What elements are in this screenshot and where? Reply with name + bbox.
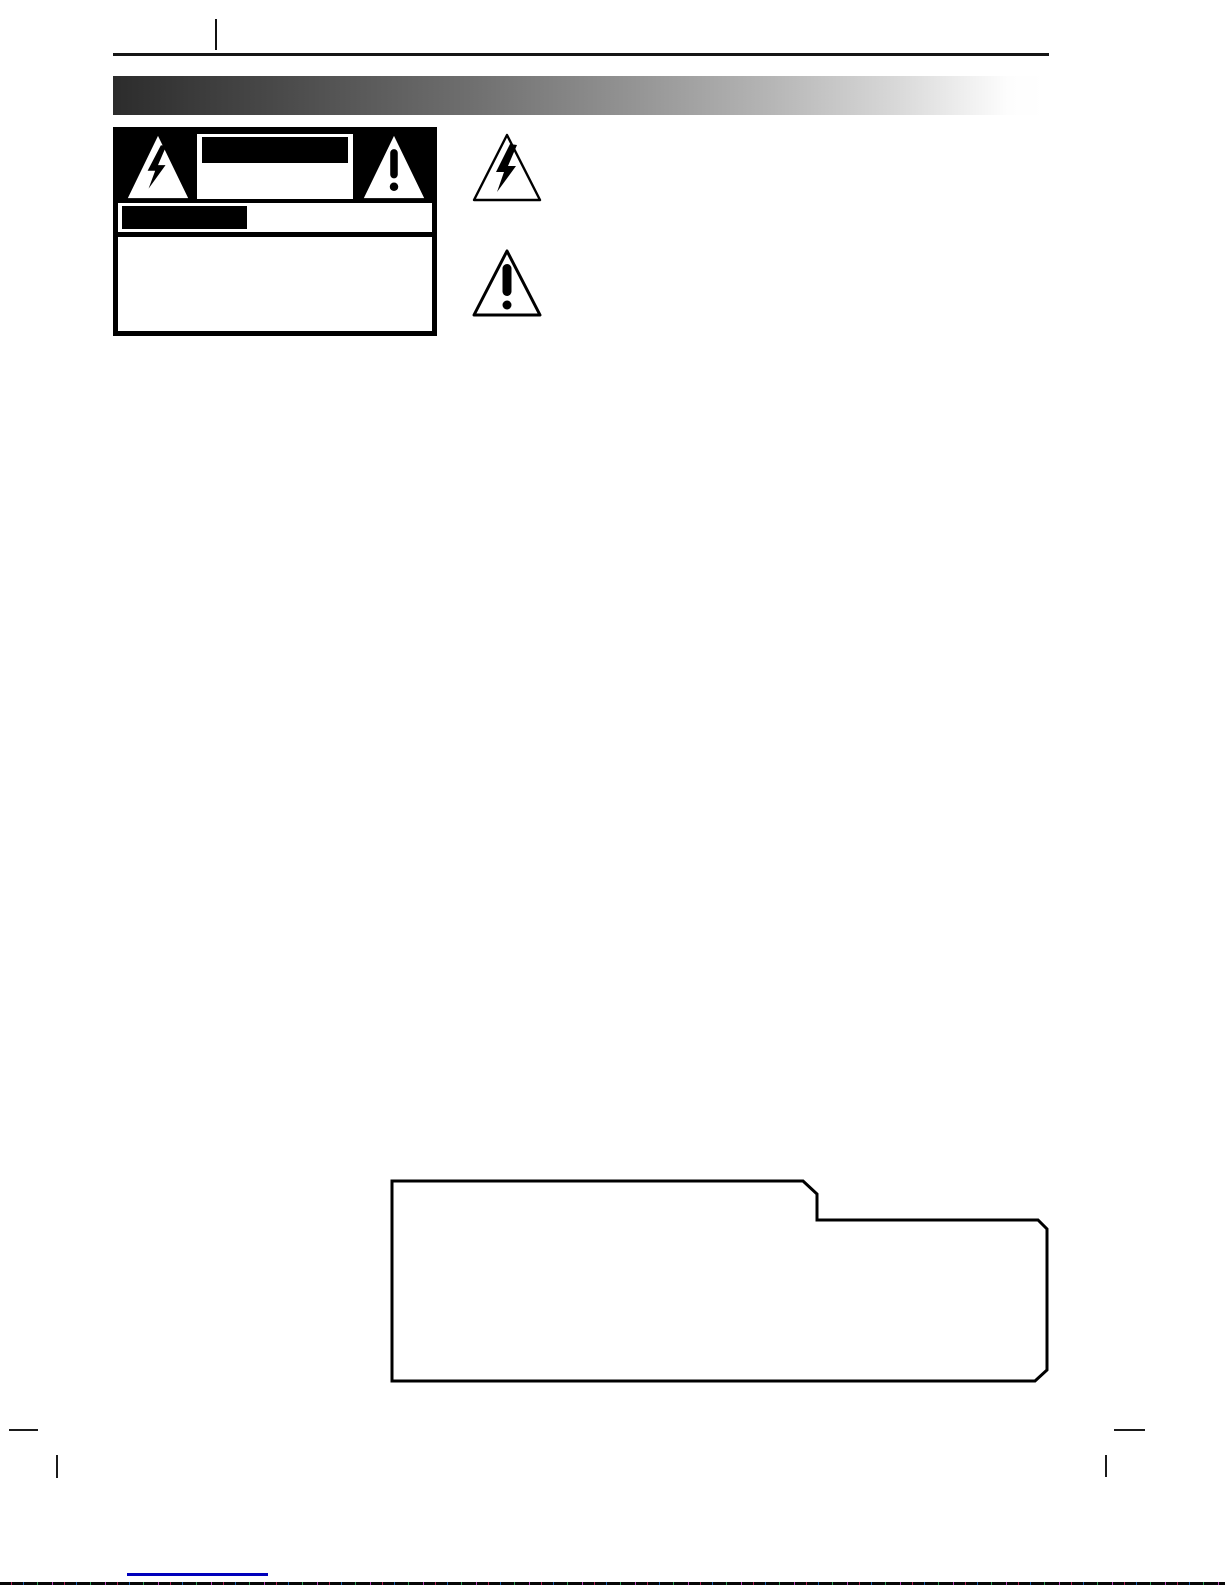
footer-link-underline — [127, 1573, 268, 1576]
safety-warning-label — [113, 127, 437, 336]
warning-body-panel — [118, 237, 432, 331]
crop-mark-tick-right — [1105, 1455, 1107, 1477]
exclamation-triangle-icon — [361, 133, 427, 201]
crop-mark-dash-left — [9, 1429, 38, 1431]
caution-caption-band — [118, 203, 432, 232]
exclamation-triangle-icon — [471, 246, 543, 319]
redacted-text-bar — [122, 206, 247, 229]
high-voltage-triangle-icon — [471, 131, 543, 204]
high-voltage-triangle-icon — [125, 133, 191, 201]
registration-tick-top — [215, 19, 217, 50]
manual-page — [0, 0, 1225, 1585]
crop-mark-tick-left — [56, 1455, 58, 1478]
crop-mark-dash-right — [1114, 1429, 1145, 1431]
header-rule — [113, 53, 1049, 56]
title-gradient-band — [113, 76, 1045, 115]
redacted-text-bar — [202, 137, 348, 163]
warning-text-panel — [197, 134, 353, 199]
note-callout-box — [385, 1172, 1053, 1387]
